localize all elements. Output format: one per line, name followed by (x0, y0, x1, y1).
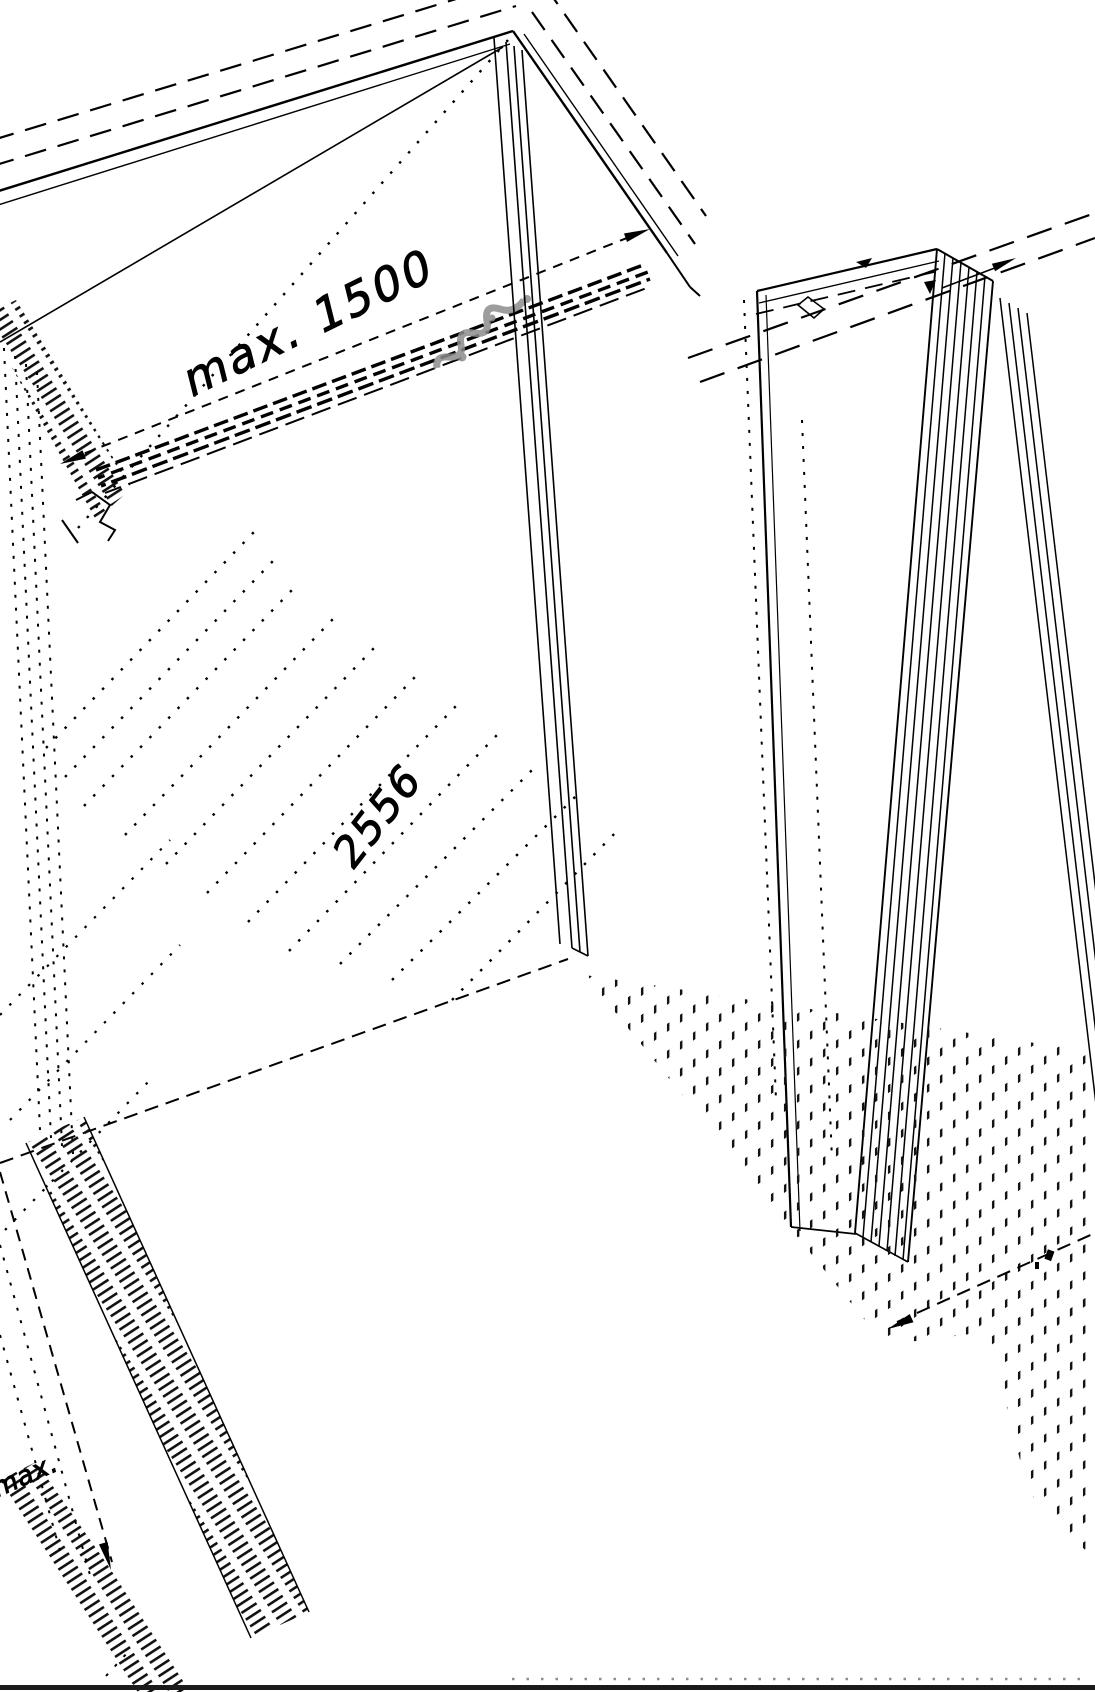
bottom-left-hatch-band-2 (0, 1462, 196, 1692)
dimension-max-1500: max. 1500 (60, 229, 650, 464)
middle-sheet: 2556 (0, 38, 620, 1230)
dimension-line (68, 232, 642, 460)
drawing-viewport: max. 1500 (0, 0, 1095, 1692)
technical-drawing: max. 1500 (0, 0, 1095, 1692)
hidden-top-edge-ticks (78, 40, 508, 528)
panel-a-dashed-outline (0, 0, 706, 244)
left-tick-columns (4, 348, 73, 1154)
right-panel-lip (798, 297, 824, 318)
dimension-arrow-right (624, 229, 650, 242)
bottom-right-tick-band-2 (988, 1286, 1095, 1560)
central-tick-rows (46, 532, 620, 1000)
bottom-border-bar (0, 1685, 1095, 1690)
bottom-right-area (585, 975, 1095, 1560)
far-right-strand-band (1000, 298, 1095, 1153)
right-dashed-guides (688, 213, 1095, 382)
dimension-label-2556: 2556 (326, 752, 430, 879)
panel-a-left-hatch-band (0, 300, 132, 520)
dimension-label-max-1500: max. 1500 (179, 236, 438, 409)
bottom-left-panel: max. (0, 1117, 309, 1692)
sheet-b-right-edge (494, 38, 588, 956)
right-panel-top-dashed (756, 272, 934, 314)
bottom-right-tick-band (585, 975, 1095, 1345)
